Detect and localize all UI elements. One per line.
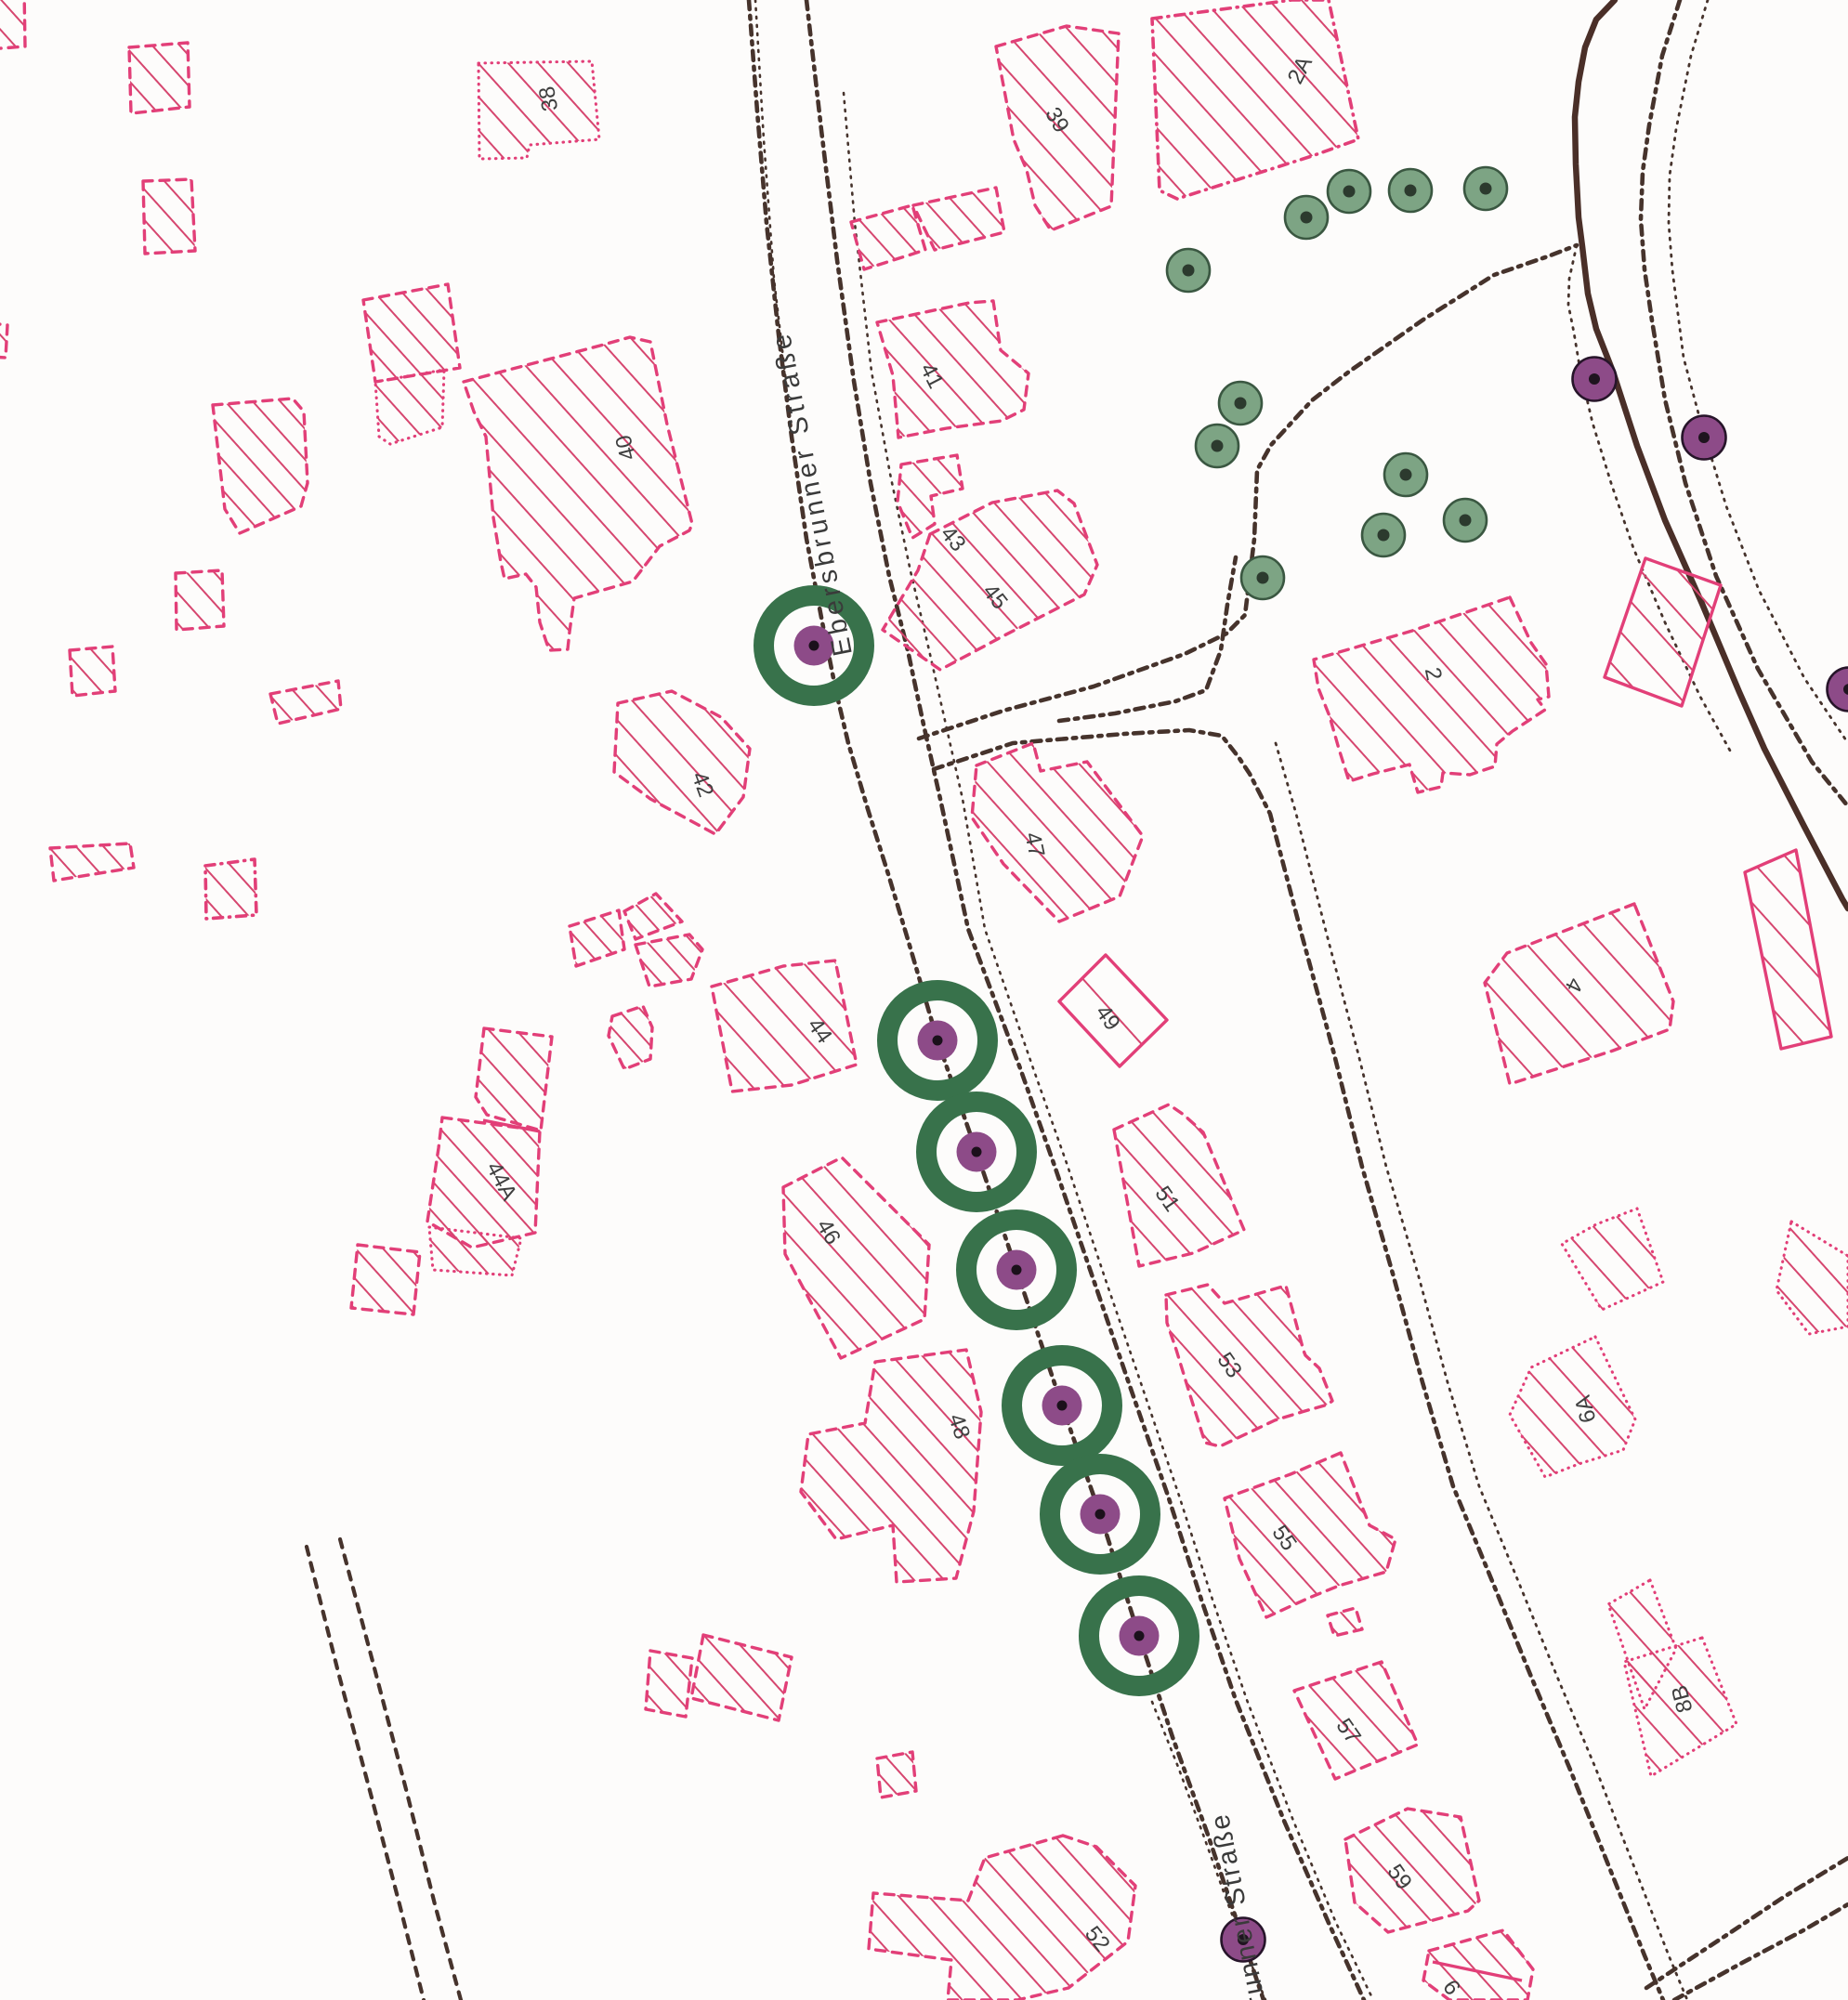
svg-text:38: 38 (534, 85, 563, 113)
svg-text:47: 47 (1019, 830, 1049, 860)
